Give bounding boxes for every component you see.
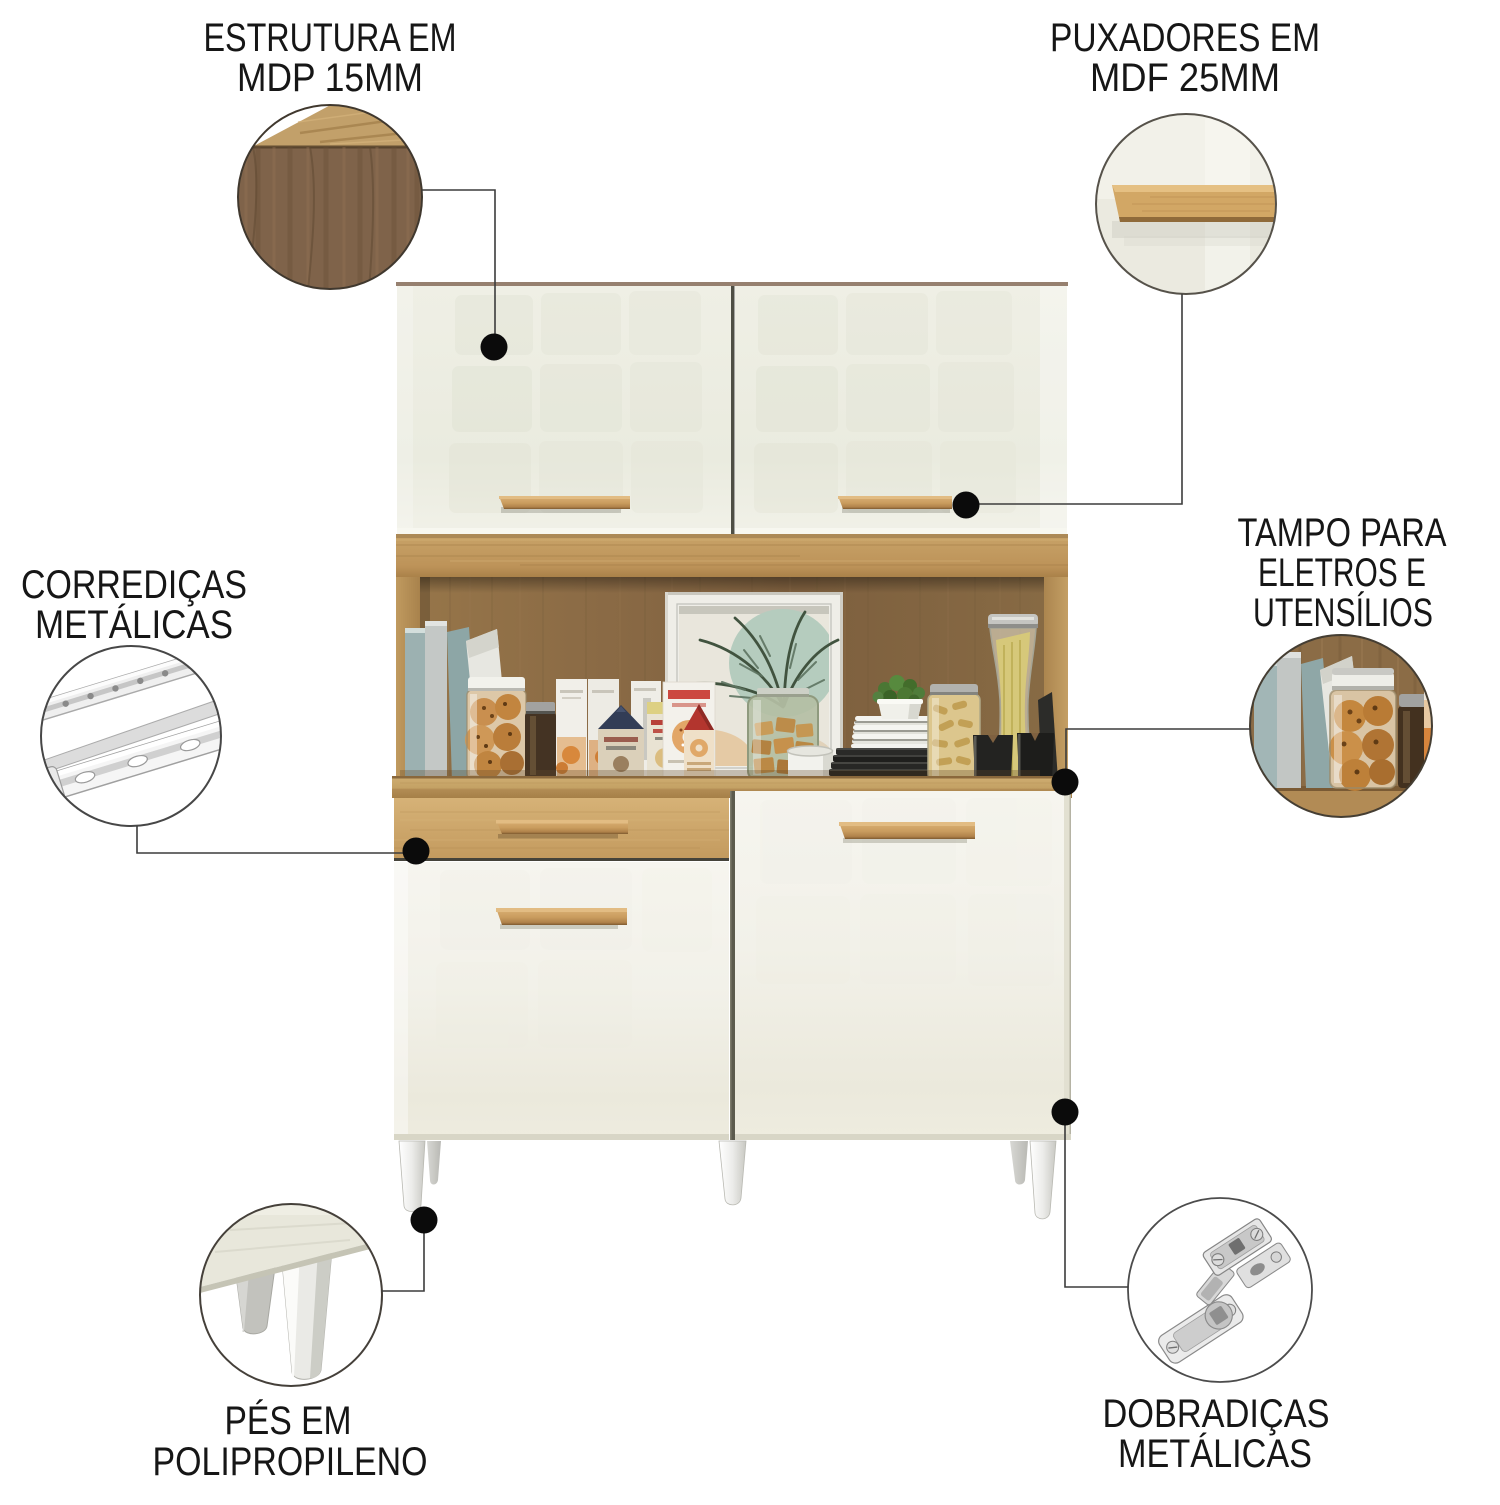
svg-text:MDP 15MM: MDP 15MM: [237, 56, 423, 100]
svg-text:POLIPROPILENO: POLIPROPILENO: [153, 1440, 428, 1484]
svg-text:ELETROS E: ELETROS E: [1258, 551, 1426, 595]
svg-text:ESTRUTURA EM: ESTRUTURA EM: [204, 16, 457, 60]
svg-text:CORREDIÇAS: CORREDIÇAS: [21, 563, 247, 607]
svg-text:MDF 25MM: MDF 25MM: [1090, 56, 1280, 100]
svg-text:UTENSÍLIOS: UTENSÍLIOS: [1253, 590, 1433, 635]
svg-text:METÁLICAS: METÁLICAS: [1118, 1431, 1312, 1476]
svg-text:METÁLICAS: METÁLICAS: [35, 602, 233, 647]
svg-text:PUXADORES EM: PUXADORES EM: [1050, 16, 1320, 60]
svg-text:TAMPO PARA: TAMPO PARA: [1238, 511, 1447, 555]
svg-text:PÉS EM: PÉS EM: [225, 1398, 352, 1443]
svg-text:DOBRADIÇAS: DOBRADIÇAS: [1103, 1392, 1330, 1436]
